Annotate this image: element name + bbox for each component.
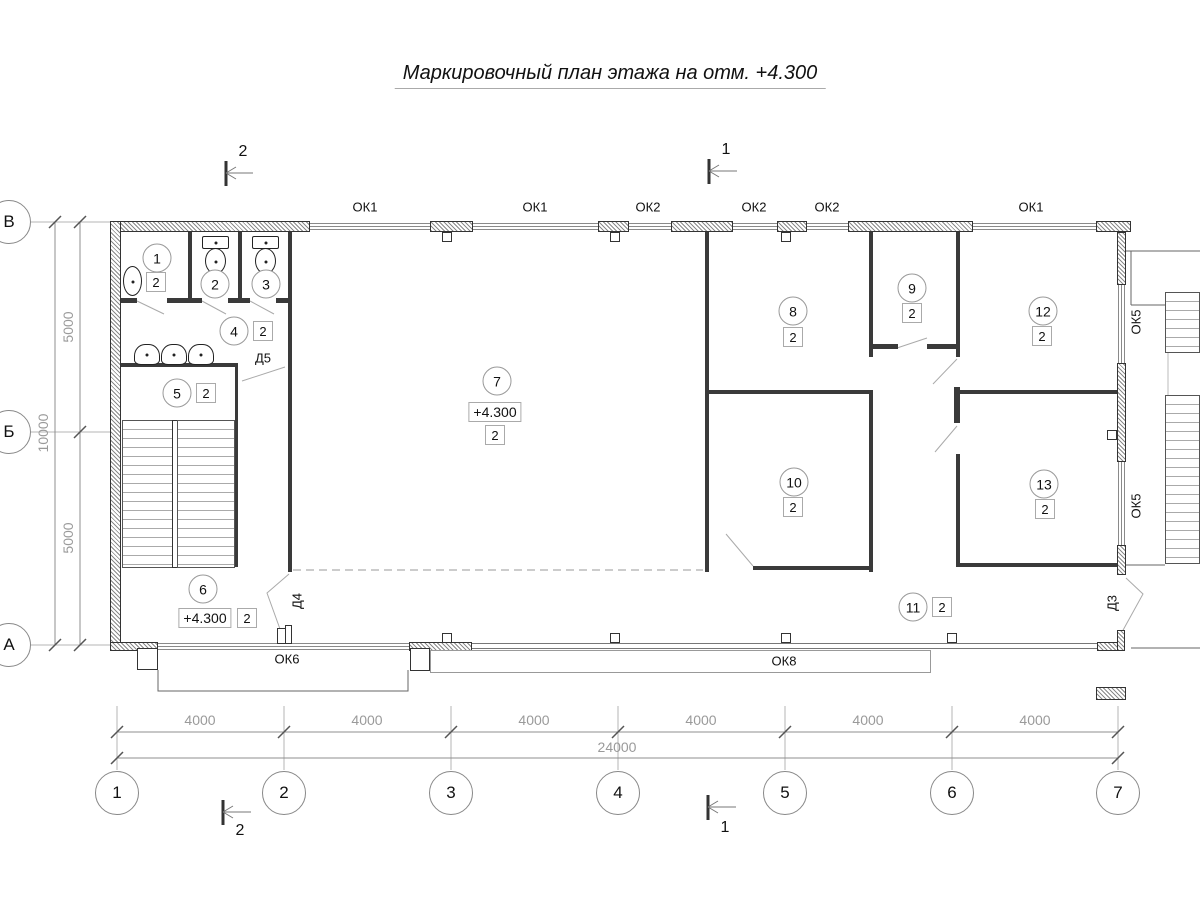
room-number-badge: 2 [201, 270, 230, 299]
axis-circle: 4 [596, 771, 640, 815]
room-finish-badge: 2 [902, 303, 922, 323]
door-label: Д3 [1105, 595, 1120, 611]
dimension-label: 5000 [60, 522, 76, 553]
axis-circle: 6 [930, 771, 974, 815]
axis-circle: 2 [262, 771, 306, 815]
wall [1117, 630, 1125, 651]
room-finish-badge: 2 [146, 272, 166, 292]
dimension-label: 5000 [60, 311, 76, 342]
column-marker [442, 633, 452, 643]
wall [1117, 545, 1126, 575]
window [1118, 285, 1125, 363]
window-label: ОК1 [1019, 200, 1044, 215]
wall [110, 221, 121, 650]
window [629, 223, 671, 230]
window-label: ОК8 [772, 654, 797, 669]
axis-circle: 5 [763, 771, 807, 815]
room-number-badge: 1 [143, 244, 172, 273]
room-number-badge: 13 [1030, 470, 1059, 499]
stall-wall [228, 298, 250, 303]
room-finish-badge: 2 [253, 321, 273, 341]
page-title: Маркировочный план этажа на отм. +4.300 [395, 62, 826, 89]
room-finish-badge: 2 [1035, 499, 1055, 519]
room-finish-badge: 2 [485, 425, 505, 445]
dimension-label: 4000 [852, 712, 883, 728]
partition-wall [956, 563, 1117, 567]
wall [472, 643, 1097, 649]
porch-pillar [410, 648, 430, 671]
exterior-stair-flight [1165, 395, 1200, 564]
column-marker [610, 232, 620, 242]
dimension-label: 4000 [1019, 712, 1050, 728]
wall [848, 221, 973, 232]
wall [598, 221, 629, 232]
elevation-mark: +4.300 [468, 402, 521, 422]
toilet-icon [251, 236, 279, 274]
window [310, 223, 430, 230]
room-number-badge: 8 [779, 297, 808, 326]
axis-circle: 7 [1096, 771, 1140, 815]
window-label: ОК1 [523, 200, 548, 215]
window [973, 223, 1096, 230]
window-band [430, 650, 931, 673]
exterior-stair-flight [1165, 292, 1200, 353]
stair-flight [177, 420, 235, 568]
wall [777, 221, 807, 232]
door-post [285, 625, 292, 644]
dimension-label: 4000 [351, 712, 382, 728]
wall [1096, 221, 1131, 232]
section-mark-label: 2 [236, 822, 245, 840]
dimension-total-label: 24000 [598, 739, 637, 755]
partition-wall [956, 232, 960, 357]
wall [110, 221, 310, 232]
sink-icon [188, 344, 214, 365]
room-number-badge: 3 [252, 270, 281, 299]
window-label: ОК5 [1129, 494, 1144, 519]
stall-wall [188, 232, 192, 298]
partition-wall [869, 394, 873, 572]
axis-circle: 3 [429, 771, 473, 815]
window-label: ОК2 [815, 200, 840, 215]
room-finish-badge: 2 [783, 497, 803, 517]
partition-wall [709, 390, 873, 394]
room-finish-badge: 2 [196, 383, 216, 403]
room-number-badge: 5 [163, 379, 192, 408]
partition-wall [927, 344, 957, 349]
window-label: ОК1 [353, 200, 378, 215]
toilet-icon [201, 236, 229, 274]
room-number-badge: 10 [780, 468, 809, 497]
column-marker [1107, 430, 1117, 440]
column-marker [781, 633, 791, 643]
window [807, 223, 848, 230]
window [158, 643, 409, 650]
room-number-badge: 9 [898, 274, 927, 303]
window [473, 223, 598, 230]
room-finish-badge: 2 [783, 327, 803, 347]
column-marker [442, 232, 452, 242]
partition-wall [288, 232, 292, 572]
stall-wall [167, 298, 202, 303]
room-finish-badge: 2 [932, 597, 952, 617]
sink-icon [134, 344, 160, 365]
wall [430, 221, 473, 232]
dimension-label: 4000 [184, 712, 215, 728]
floor-plan-drawing: Маркировочный план этажа на отм. +4.300 [0, 0, 1200, 900]
sink-icon [161, 344, 187, 365]
partition-wall [954, 387, 960, 423]
dimension-label: 4000 [685, 712, 716, 728]
partition-wall [869, 232, 873, 357]
stall-wall [121, 298, 137, 303]
stair-flight [122, 420, 173, 568]
room-number-badge: 4 [220, 317, 249, 346]
door-label: Д5 [255, 351, 271, 366]
stall-wall [276, 298, 292, 303]
window-label: ОК5 [1129, 310, 1144, 335]
section-mark-label: 1 [722, 141, 731, 159]
column-marker [610, 633, 620, 643]
section-mark-label: 1 [721, 819, 730, 837]
room-number-badge: 12 [1029, 297, 1058, 326]
wall [671, 221, 733, 232]
porch-pillar [137, 648, 158, 670]
partition-wall [869, 344, 898, 349]
wall [1117, 232, 1126, 285]
partition-wall [959, 390, 1117, 394]
window [1118, 462, 1125, 545]
window-label: ОК2 [636, 200, 661, 215]
urinal-icon [123, 266, 142, 296]
partition-wall [753, 566, 873, 570]
exterior-step [1096, 687, 1126, 700]
column-marker [947, 633, 957, 643]
room-number-badge: 6 [189, 575, 218, 604]
window-label: ОК2 [742, 200, 767, 215]
room-finish-badge: 2 [237, 608, 257, 628]
dimension-label: 4000 [518, 712, 549, 728]
room-number-badge: 11 [899, 593, 928, 622]
window [733, 223, 777, 230]
wall [1117, 363, 1126, 462]
window-label: ОК6 [275, 652, 300, 667]
door-label: Д4 [290, 593, 305, 609]
section-mark-label: 2 [239, 143, 248, 161]
room-number-badge: 7 [483, 367, 512, 396]
dimension-total-label: 10000 [35, 414, 51, 453]
partition-wall [956, 454, 960, 567]
stair-rail [235, 367, 238, 567]
column-marker [781, 232, 791, 242]
partition-wall [705, 232, 709, 572]
stall-wall [238, 232, 242, 298]
axis-circle: 1 [95, 771, 139, 815]
room-finish-badge: 2 [1032, 326, 1052, 346]
elevation-mark: +4.300 [178, 608, 231, 628]
